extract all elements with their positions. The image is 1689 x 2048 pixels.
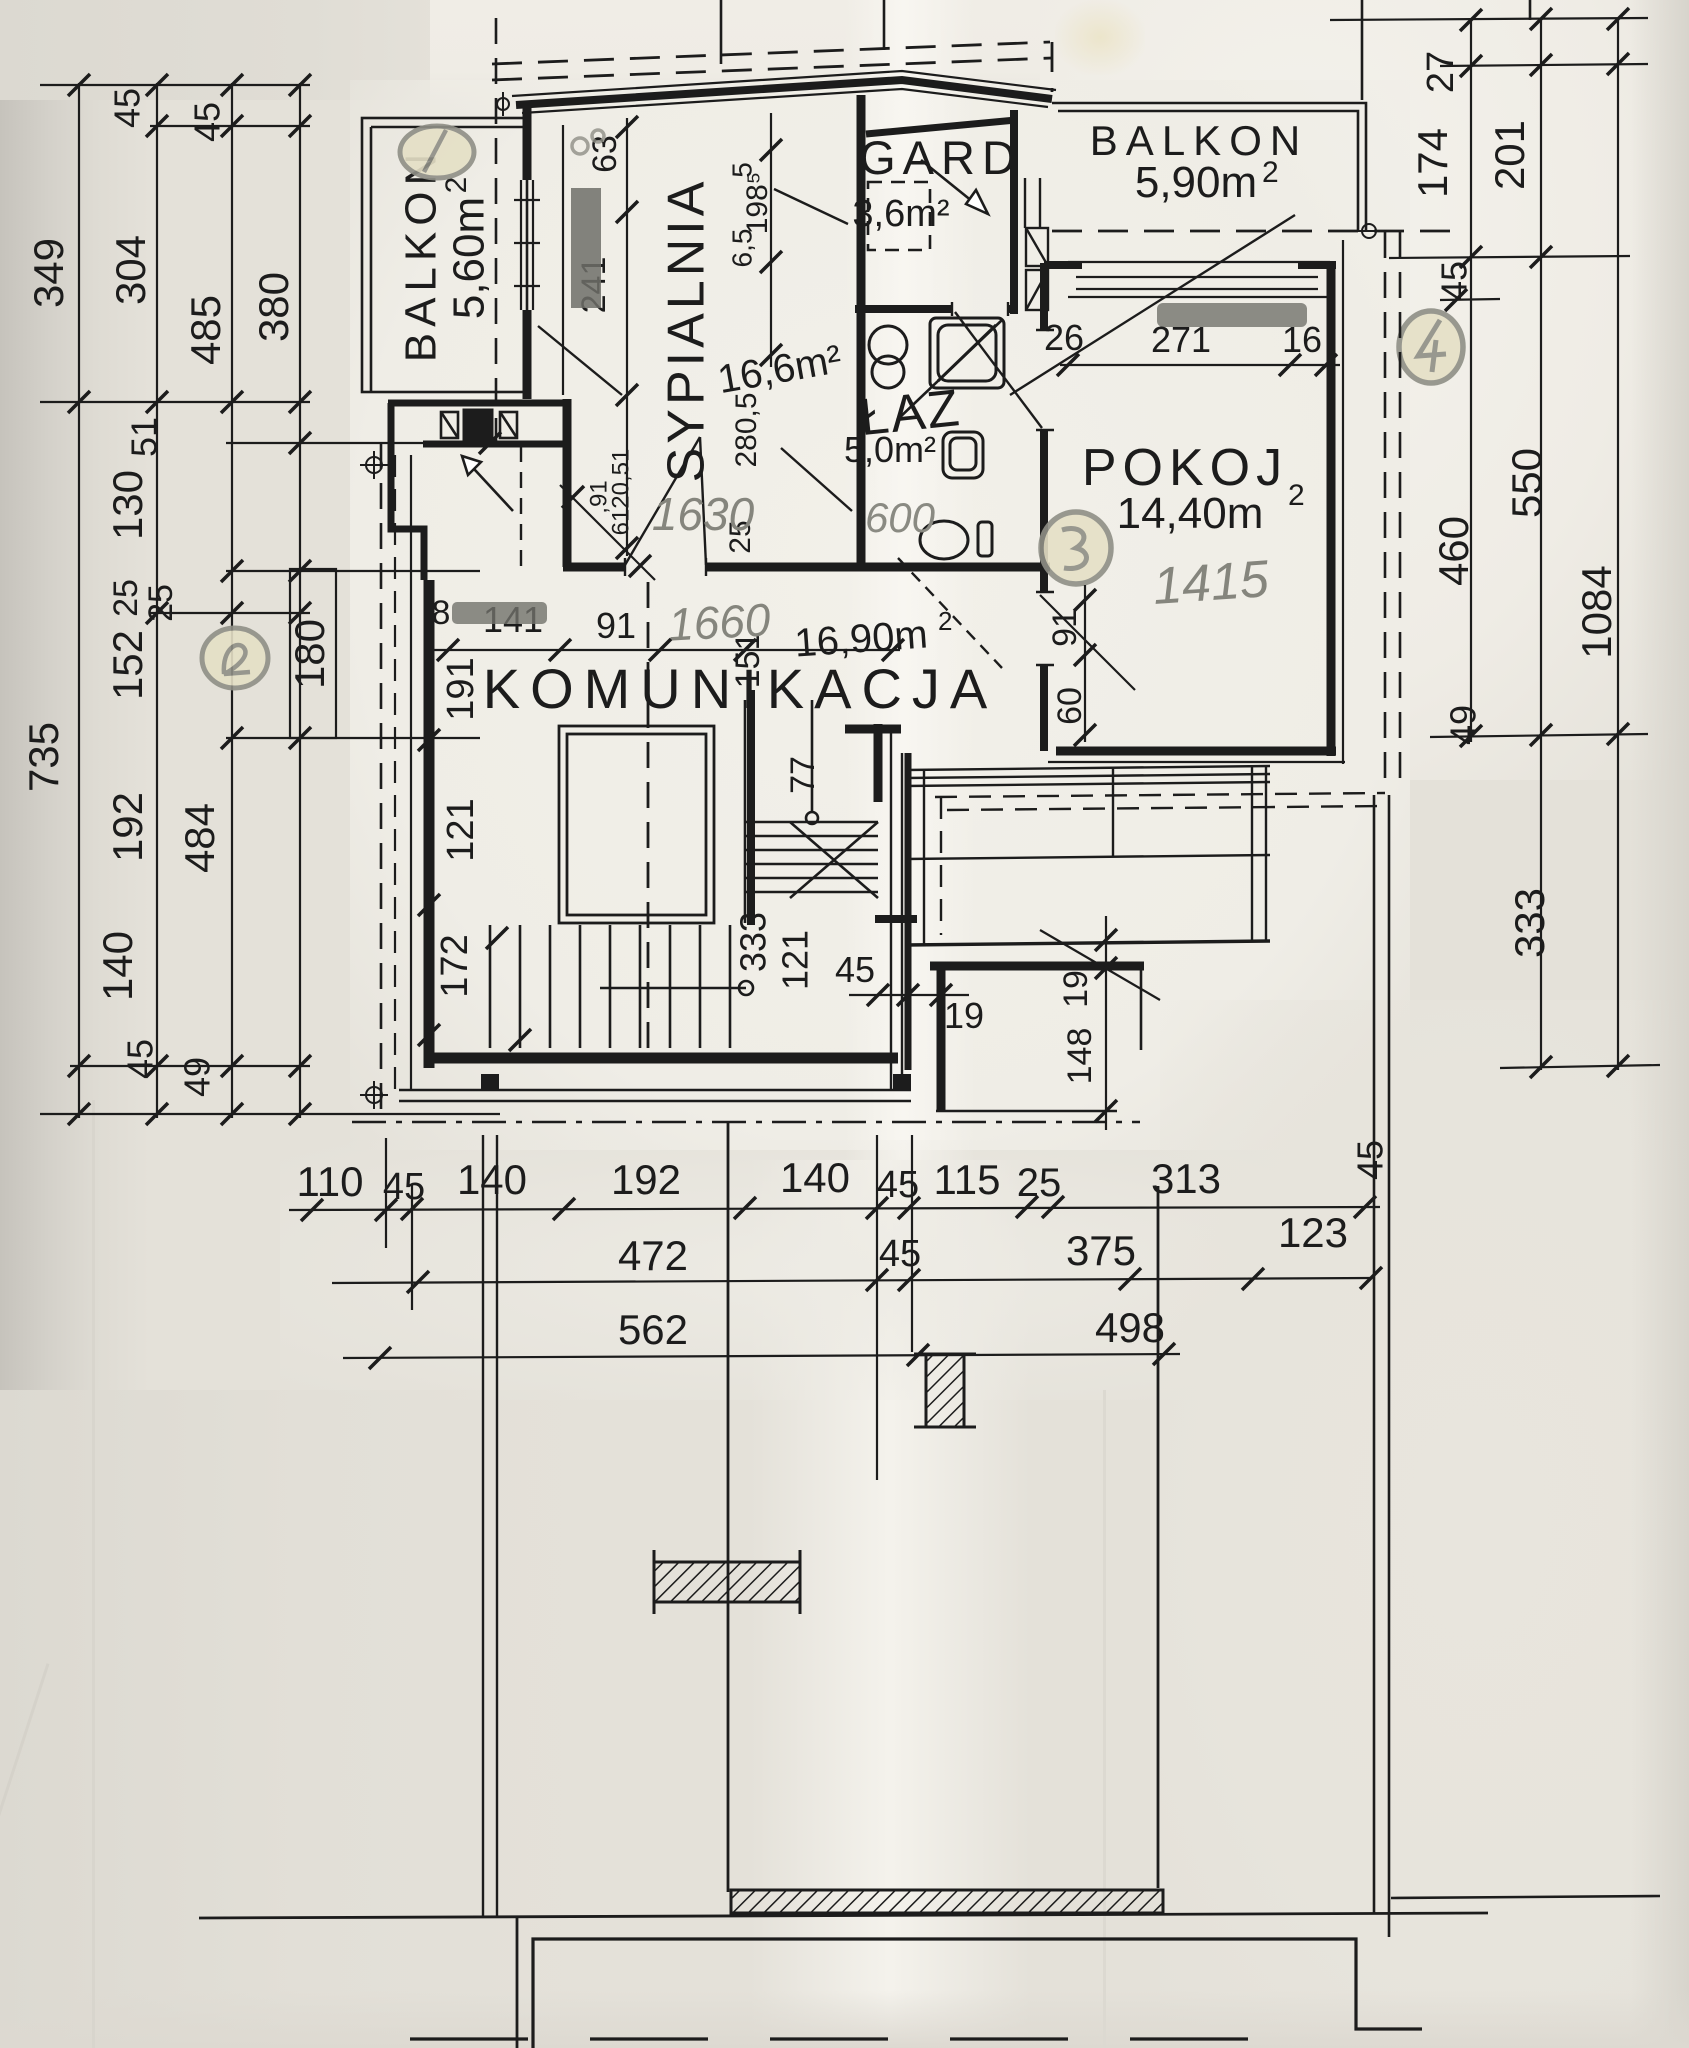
svg-text:1660: 1660 (667, 593, 772, 650)
svg-text:16,90m: 16,90m (793, 612, 929, 665)
svg-text:45: 45 (120, 1039, 161, 1079)
svg-text:130: 130 (104, 470, 151, 540)
svg-text:472: 472 (618, 1232, 688, 1279)
svg-text:45: 45 (1350, 1140, 1391, 1180)
svg-text:498: 498 (1095, 1304, 1165, 1351)
svg-text:198⁵: 198⁵ (741, 172, 774, 235)
svg-text:121: 121 (440, 798, 482, 861)
svg-text:25: 25 (142, 584, 180, 622)
svg-text:5: 5 (726, 162, 757, 178)
svg-text:123: 123 (1278, 1209, 1348, 1256)
svg-text:27: 27 (1420, 51, 1462, 93)
svg-text:380: 380 (250, 272, 297, 342)
svg-text:140: 140 (780, 1154, 850, 1201)
svg-text:140: 140 (94, 931, 141, 1001)
svg-text:172: 172 (434, 934, 476, 997)
svg-text:201: 201 (1486, 120, 1533, 190)
svg-text:91: 91 (1046, 609, 1084, 647)
svg-text:333: 333 (1506, 888, 1553, 958)
svg-text:SYPIALNIA: SYPIALNIA (658, 178, 716, 483)
svg-text:6120,51: 6120,51 (607, 449, 634, 536)
svg-text:45: 45 (879, 1233, 921, 1275)
svg-text:148: 148 (1061, 1028, 1099, 1085)
svg-text:45: 45 (877, 1164, 919, 1206)
svg-text:304: 304 (107, 235, 154, 305)
svg-text:110: 110 (297, 1158, 364, 1205)
svg-text:45: 45 (187, 102, 228, 142)
svg-text:152: 152 (104, 630, 151, 700)
svg-text:60: 60 (1051, 687, 1089, 725)
svg-text:3,6m²: 3,6m² (852, 193, 949, 235)
svg-text:121: 121 (775, 930, 816, 990)
svg-text:349: 349 (25, 238, 72, 308)
svg-text:GARD: GARD (859, 131, 1023, 184)
svg-text:140: 140 (457, 1156, 527, 1203)
svg-text:19: 19 (1057, 970, 1095, 1008)
svg-text:5,0m²: 5,0m² (844, 429, 936, 470)
svg-text:45: 45 (383, 1166, 425, 1208)
svg-text:191: 191 (440, 657, 482, 720)
svg-text:25: 25 (107, 579, 145, 617)
svg-text:45: 45 (835, 949, 875, 990)
svg-text:280,5: 280,5 (730, 392, 763, 467)
svg-text:49: 49 (177, 1057, 218, 1097)
svg-text:26: 26 (1044, 317, 1084, 358)
svg-text:63: 63 (586, 135, 624, 173)
svg-text:2: 2 (1262, 156, 1279, 189)
svg-text:49: 49 (1443, 705, 1484, 745)
svg-text:91: 91 (596, 605, 636, 646)
svg-text:115: 115 (934, 1156, 1001, 1203)
svg-text:16: 16 (1282, 319, 1322, 360)
svg-text:45: 45 (107, 88, 148, 128)
svg-text:1415: 1415 (1151, 550, 1272, 616)
svg-text:271: 271 (1151, 319, 1211, 360)
svg-text:2: 2 (938, 606, 952, 636)
svg-text:14,40m: 14,40m (1117, 489, 1264, 538)
svg-text:375: 375 (1066, 1227, 1136, 1274)
svg-text:5,90m: 5,90m (1135, 158, 1257, 207)
svg-text:45: 45 (1434, 261, 1475, 301)
svg-text:2: 2 (1288, 479, 1305, 512)
svg-text:51: 51 (124, 417, 165, 457)
svg-text:485: 485 (182, 295, 229, 365)
svg-text:25: 25 (1017, 1161, 1062, 1205)
svg-text:180: 180 (286, 619, 333, 689)
svg-text:562: 562 (618, 1306, 688, 1353)
svg-text:6,5: 6,5 (726, 229, 757, 268)
svg-text:313: 313 (1151, 1155, 1221, 1202)
svg-text:735: 735 (20, 722, 67, 792)
svg-text:550: 550 (1503, 448, 1550, 518)
svg-text:192: 192 (104, 792, 151, 862)
svg-text:8: 8 (432, 594, 451, 632)
svg-text:460: 460 (1430, 516, 1477, 586)
svg-text:1630: 1630 (652, 488, 755, 540)
svg-text:174: 174 (1409, 128, 1456, 198)
svg-text:192: 192 (611, 1156, 681, 1203)
svg-text:484: 484 (176, 803, 223, 873)
svg-text:600: 600 (865, 494, 936, 541)
svg-text:77: 77 (784, 756, 822, 794)
svg-text:1084: 1084 (1573, 565, 1620, 658)
svg-text:19: 19 (944, 995, 984, 1036)
svg-text:5,60m: 5,60m (445, 197, 494, 319)
